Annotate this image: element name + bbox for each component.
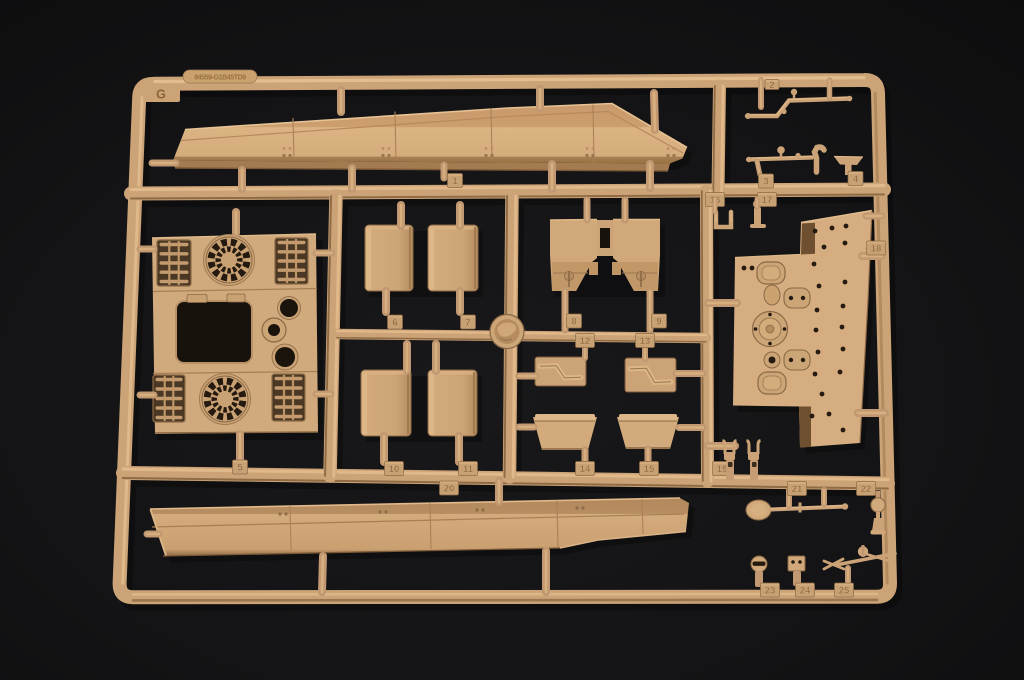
- svg-text:1: 1: [452, 176, 458, 187]
- svg-text:9: 9: [656, 317, 661, 328]
- svg-text:15: 15: [644, 464, 655, 475]
- svg-text:2: 2: [769, 80, 774, 91]
- svg-text:11: 11: [463, 464, 474, 475]
- svg-text:24: 24: [800, 586, 811, 597]
- svg-text:3: 3: [763, 177, 768, 188]
- svg-text:10: 10: [389, 464, 400, 475]
- svg-text:18: 18: [871, 244, 882, 255]
- svg-text:19: 19: [717, 464, 728, 475]
- svg-text:7: 7: [465, 318, 470, 329]
- svg-text:20: 20: [444, 484, 455, 495]
- svg-text:6: 6: [392, 318, 397, 329]
- svg-text:22: 22: [861, 484, 872, 495]
- svg-text:G: G: [156, 88, 166, 102]
- svg-text:25: 25: [839, 586, 850, 597]
- svg-text:17: 17: [762, 195, 773, 206]
- svg-text:12: 12: [580, 336, 591, 347]
- svg-text:84559-G1B45TD9: 84559-G1B45TD9: [194, 75, 246, 82]
- svg-text:4: 4: [853, 174, 859, 185]
- svg-text:14: 14: [580, 464, 591, 475]
- svg-text:13: 13: [640, 336, 651, 347]
- svg-text:23: 23: [765, 586, 776, 597]
- svg-text:8: 8: [571, 317, 576, 328]
- svg-text:21: 21: [792, 484, 803, 495]
- svg-text:5: 5: [237, 463, 243, 474]
